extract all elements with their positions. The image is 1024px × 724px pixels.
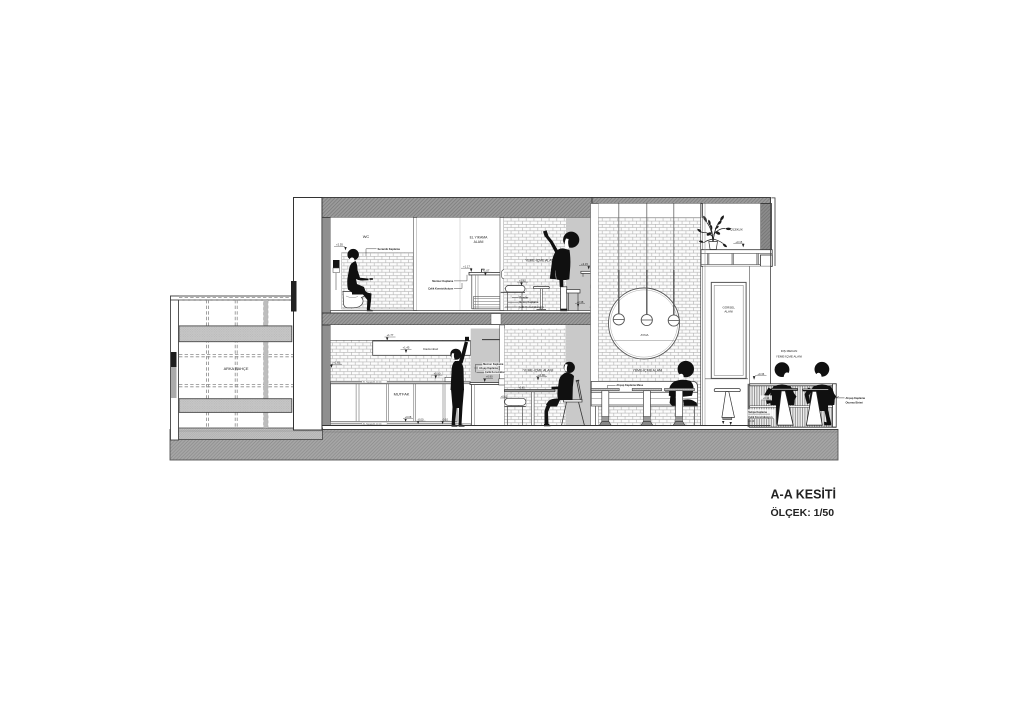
svg-text:+2.62: +2.62	[519, 278, 526, 282]
svg-text:Beton Kaplama: Beton Kaplama	[519, 300, 538, 304]
svg-text:+2.55: +2.55	[336, 243, 343, 247]
svg-text:Ahşap Kaplama: Ahşap Kaplama	[479, 367, 498, 370]
svg-text:+0.08: +0.08	[405, 415, 412, 419]
svg-text:Oturma Birimi: Oturma Birimi	[846, 400, 864, 404]
svg-text:+0.90: +0.90	[538, 373, 545, 377]
svg-text:Çelik Konstrüksiyon: Çelik Konstrüksiyon	[748, 416, 773, 419]
svg-text:YEME-İÇME ALANI: YEME-İÇME ALANI	[633, 367, 663, 372]
svg-text:Render: Render	[519, 295, 528, 299]
svg-text:WC: WC	[363, 234, 370, 239]
svg-text:-0.10: -0.10	[442, 417, 448, 421]
svg-text:A-A KESİTİ: A-A KESİTİ	[771, 487, 837, 502]
svg-text:AYNA: AYNA	[641, 333, 649, 337]
svg-text:YEME-İÇME ALANI: YEME-İÇME ALANI	[523, 367, 553, 372]
svg-text:+0.36: +0.36	[757, 372, 764, 376]
svg-text:ALANI: ALANI	[724, 310, 733, 314]
svg-text:Çelik Konstrüksiyon: Çelik Konstrüksiyon	[428, 286, 453, 290]
svg-text:+0.10: +0.10	[763, 397, 770, 400]
svg-text:+1.07: +1.07	[483, 268, 490, 272]
svg-text:YEME-İÇME ALANI: YEME-İÇME ALANI	[525, 258, 555, 263]
svg-text:-0.00: -0.00	[418, 417, 424, 421]
svg-text:+0.10: +0.10	[748, 421, 755, 423]
svg-text:Ahşap Kaplama: Ahşap Kaplama	[846, 396, 866, 400]
svg-text:+1.77: +1.77	[387, 333, 394, 337]
svg-text:DIŞ MEKAN: DIŞ MEKAN	[781, 349, 798, 353]
svg-text:ÖLÇEK: 1/50: ÖLÇEK: 1/50	[771, 506, 835, 519]
svg-text:GÖRSEL: GÖRSEL	[722, 305, 735, 309]
svg-text:ARKA BAHÇE: ARKA BAHÇE	[224, 366, 249, 371]
svg-text:+3.15: +3.15	[735, 240, 742, 244]
svg-text:EL YIKAMA: EL YIKAMA	[470, 235, 488, 239]
svg-text:+0.90: +0.90	[486, 375, 493, 379]
svg-text:ÇİÇEKLİK: ÇİÇEKLİK	[730, 226, 743, 231]
svg-text:YEME-İÇME ALANI: YEME-İÇME ALANI	[776, 354, 803, 359]
svg-text:Mermer Kaplama: Mermer Kaplama	[432, 279, 453, 283]
svg-text:+0.90: +0.90	[434, 371, 441, 375]
svg-text:ALANI: ALANI	[474, 240, 484, 244]
svg-text:Ahşap Kaplama Masa: Ahşap Kaplama Masa	[616, 383, 643, 387]
svg-text:Çelik Konstrüksiyon: Çelik Konstrüksiyon	[519, 305, 544, 309]
svg-text:St. Topografik 11 mm: St. Topografik 11 mm	[363, 422, 382, 425]
svg-text:+1.17: +1.17	[463, 264, 470, 268]
svg-text:Mermer Kaplama: Mermer Kaplama	[483, 363, 504, 366]
svg-text:St. Topografik 11 mm: St. Topografik 11 mm	[363, 381, 382, 384]
svg-text:+1.45: +1.45	[403, 346, 410, 350]
svg-text:Sehpa Kaplama: Sehpa Kaplama	[748, 411, 767, 414]
svg-text:+2.38: +2.38	[577, 300, 584, 304]
svg-text:Davlumbaz: Davlumbaz	[423, 347, 439, 351]
svg-text:Seramik Kaplama: Seramik Kaplama	[378, 247, 401, 251]
svg-text:+3.15: +3.15	[581, 262, 588, 266]
svg-text:MUTFAK: MUTFAK	[394, 391, 410, 396]
svg-text:+1.65: +1.65	[333, 360, 340, 364]
